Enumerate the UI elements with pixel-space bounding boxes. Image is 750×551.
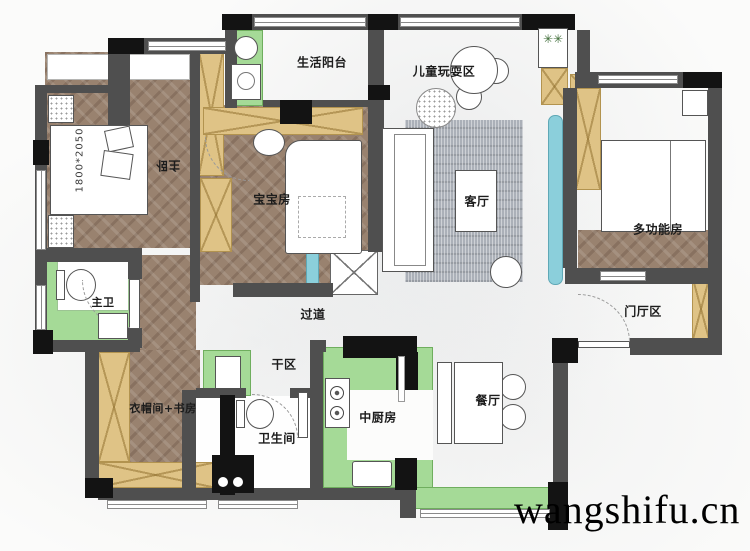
- multi-room-wardrobe: [575, 88, 601, 190]
- column: [108, 38, 144, 54]
- side-table: [490, 256, 522, 288]
- shower-drain: [233, 477, 243, 487]
- wall: [98, 488, 216, 500]
- column: [33, 330, 53, 354]
- wall: [35, 85, 113, 93]
- window: [400, 17, 520, 27]
- column: [280, 100, 312, 124]
- nightstand: [48, 95, 74, 123]
- column: [368, 85, 390, 100]
- wall: [400, 488, 416, 518]
- baby-bed-blanket: [298, 196, 346, 238]
- room-label-master-bedroom: 主卧: [155, 158, 180, 175]
- balcony-basin: [234, 36, 258, 60]
- baby-stool: [253, 129, 285, 156]
- master-bath-door: [129, 279, 140, 329]
- entry-door-leaf: [578, 341, 630, 348]
- multi-room-nightstand: [682, 90, 708, 116]
- wall: [190, 52, 200, 302]
- wall: [368, 135, 382, 252]
- room-label-multi-function-room: 多功能房: [633, 221, 683, 238]
- play-mat: [416, 88, 456, 128]
- column: [395, 458, 417, 490]
- room-label-cloakroom-study: 衣帽间+书房: [129, 400, 196, 416]
- room-label-hallway: 过道: [300, 306, 325, 323]
- toilet-tank: [236, 400, 245, 428]
- room-label-baby-room: 宝宝房: [253, 191, 291, 208]
- stove-burner-icon: [330, 386, 344, 400]
- wall: [85, 342, 99, 488]
- shower-drain: [218, 477, 228, 487]
- sofa-seat: [394, 134, 426, 266]
- toilet-tank: [56, 270, 65, 300]
- stove-burner-icon: [330, 406, 344, 420]
- wall: [128, 255, 142, 279]
- watermark: wangshifu.cn: [514, 486, 740, 533]
- room-label-bathroom: 卫生间: [258, 430, 296, 447]
- column: [683, 72, 722, 88]
- shower-block: [212, 455, 254, 493]
- wall: [563, 88, 577, 268]
- column: [222, 14, 252, 30]
- window: [148, 41, 226, 51]
- kitchen-panel: [398, 356, 405, 402]
- dry-area-sink: [215, 356, 241, 390]
- kitchen-sink: [352, 461, 392, 487]
- washing-machine-drum: [237, 72, 255, 90]
- wall: [708, 88, 722, 355]
- window: [218, 500, 298, 509]
- nightstand: [48, 215, 74, 248]
- wall: [553, 360, 568, 485]
- duct-shaft: [330, 250, 378, 295]
- master-bed: [50, 125, 148, 215]
- bed-pillow-divider: [670, 141, 671, 231]
- column: [368, 14, 398, 30]
- dining-bench: [437, 362, 452, 444]
- bathroom-door: [298, 392, 308, 438]
- wall: [310, 347, 323, 488]
- door-swing-arc: [578, 294, 630, 342]
- window: [36, 285, 46, 330]
- tv-console: [548, 115, 563, 285]
- multi-room-door: [600, 271, 646, 281]
- room-label-life-balcony: 生活阳台: [297, 54, 347, 71]
- room-label-living-room: 客厅: [464, 193, 489, 210]
- plant-glyph: ✳✳: [539, 31, 567, 48]
- room-label-chinese-kitchen: 中厨房: [359, 409, 397, 426]
- room-label-kids-play-area: 儿童玩耍区: [413, 63, 476, 80]
- window: [598, 75, 678, 84]
- bed-dimension-label: 1800*2050: [75, 128, 86, 193]
- multi-room-bed: [601, 140, 706, 232]
- room-label-dry-area: 干区: [271, 356, 296, 373]
- column: [33, 140, 49, 165]
- window: [36, 170, 46, 250]
- wall: [577, 30, 590, 74]
- wall: [310, 340, 326, 352]
- room-label-master-bathroom: 主卫: [92, 294, 115, 310]
- pillow-icon: [100, 150, 133, 180]
- column: [85, 478, 113, 498]
- wall: [233, 283, 333, 297]
- wall: [35, 248, 142, 262]
- window: [107, 500, 207, 509]
- room-label-entry-hall: 门厅区: [624, 303, 662, 320]
- room-label-dining-room: 餐厅: [475, 392, 500, 409]
- master-wardrobe-lower: [200, 178, 232, 252]
- cloakroom-wardrobe: [98, 352, 130, 462]
- plant-icon: ✳✳: [538, 28, 568, 68]
- entry-door-column: [552, 338, 578, 363]
- dining-chair: [500, 404, 526, 430]
- window: [254, 17, 366, 27]
- dining-chair: [500, 374, 526, 400]
- master-bath-sink: [98, 313, 128, 339]
- wall: [368, 30, 384, 135]
- floor-plan: ✳✳ 主卧 生活阳台 儿童玩耍区 宝宝房 客厅 多功能房 主卫 过道 门厅区 衣…: [0, 0, 750, 551]
